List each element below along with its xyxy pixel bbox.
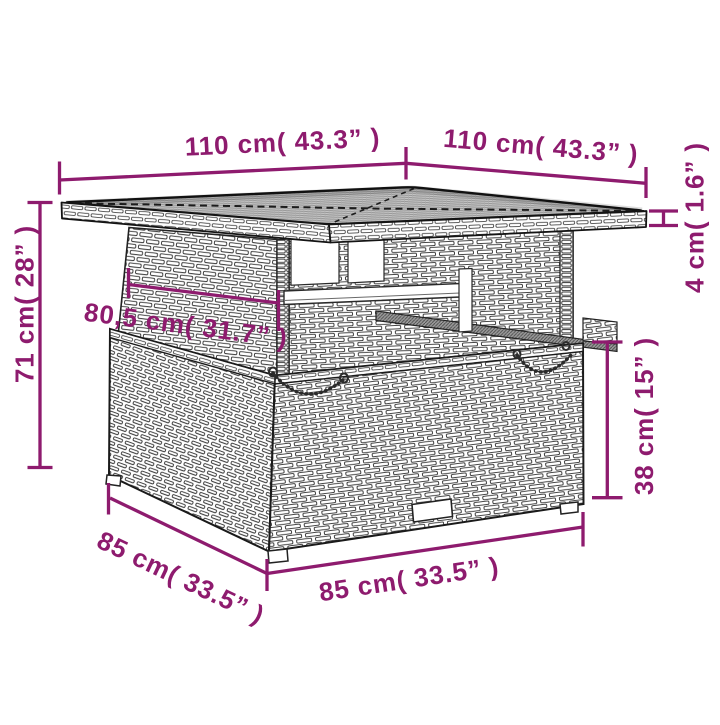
- svg-text:4 cm( 1.6” ): 4 cm( 1.6” ): [680, 142, 710, 293]
- svg-text:38 cm( 15” ): 38 cm( 15” ): [629, 337, 659, 495]
- svg-text:71 cm( 28” ): 71 cm( 28” ): [10, 225, 40, 383]
